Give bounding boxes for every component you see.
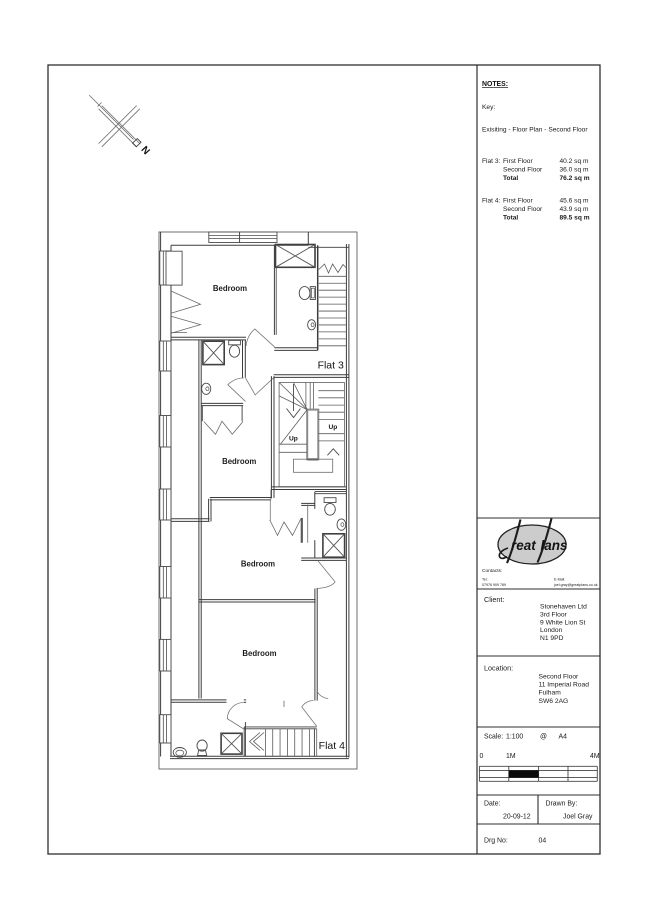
svg-text:9 White Lion St: 9 White Lion St [540,619,585,626]
svg-text:Contacts:: Contacts: [482,568,502,574]
svg-text:Second Floor: Second Floor [503,167,543,174]
svg-text:Total: Total [503,215,518,222]
svg-text:Tel:: Tel: [482,578,488,582]
svg-text:reat: reat [511,538,536,553]
svg-text:89.5 sq m: 89.5 sq m [560,215,590,222]
svg-text:SW6 2AG: SW6 2AG [539,698,569,705]
svg-text:76.2 sq m: 76.2 sq m [560,175,590,182]
svg-text:36.0 sq m: 36.0 sq m [560,167,589,174]
svg-text:Drg No:: Drg No: [484,838,508,845]
svg-text:Scale:: Scale: [484,734,503,741]
svg-text:Bedroom: Bedroom [242,649,276,658]
svg-text:Bedroom: Bedroom [213,284,247,293]
svg-text:Second Floor: Second Floor [503,206,543,213]
svg-text:@: @ [540,734,547,741]
svg-text:Location:: Location: [484,664,513,673]
svg-text:First Floor: First Floor [503,198,533,205]
svg-text:Exisiting - Floor Plan - Secon: Exisiting - Floor Plan - Second Floor [482,127,588,134]
svg-text:Joel Gray: Joel Gray [563,814,593,821]
svg-text:Client:: Client: [484,595,504,604]
svg-text:Total: Total [503,175,518,182]
svg-text:Flat 3:: Flat 3: [482,158,500,165]
svg-text:40.2 sq m: 40.2 sq m [560,158,589,165]
svg-text:Flat 4:: Flat 4: [482,198,500,205]
svg-text:Second Floor: Second Floor [539,674,580,681]
svg-text:London: London [540,627,563,634]
svg-text:NOTES:: NOTES: [482,81,508,88]
svg-text:Bedroom: Bedroom [222,457,256,466]
svg-text:07976 909 789: 07976 909 789 [482,583,506,587]
svg-text:lans: lans [541,538,569,553]
svg-text:Flat 4: Flat 4 [319,740,345,752]
svg-text:45.6 sq m: 45.6 sq m [560,198,589,205]
svg-text:A4: A4 [559,734,568,741]
svg-text:0: 0 [480,753,484,760]
svg-text:Flat 3: Flat 3 [318,360,344,372]
svg-text:N1 9PD: N1 9PD [540,635,564,642]
svg-text:20-09-12: 20-09-12 [503,814,531,821]
svg-text:1M: 1M [506,753,516,760]
svg-text:3rd Floor: 3rd Floor [540,611,568,618]
svg-text:Stonehaven Ltd: Stonehaven Ltd [540,604,587,611]
svg-text:E-Mail:: E-Mail: [554,578,565,582]
svg-text:Drawn By:: Drawn By: [546,801,578,808]
svg-text:11 Imperial Road: 11 Imperial Road [539,682,590,689]
svg-text:1:100: 1:100 [506,734,523,741]
svg-text:Bedroom: Bedroom [241,559,275,568]
svg-text:Up: Up [329,424,338,431]
svg-text:43.9 sq m: 43.9 sq m [560,206,589,213]
svg-text:Up: Up [289,436,298,443]
svg-text:Date:: Date: [484,801,501,808]
svg-text:4M: 4M [590,753,600,760]
svg-text:Fulham: Fulham [539,690,562,697]
svg-text:04: 04 [539,838,547,845]
svg-text:First Floor: First Floor [503,158,533,165]
svg-text:joel.gray@greatplans.co.uk: joel.gray@greatplans.co.uk [553,583,598,587]
svg-text:Key:: Key: [482,104,495,111]
